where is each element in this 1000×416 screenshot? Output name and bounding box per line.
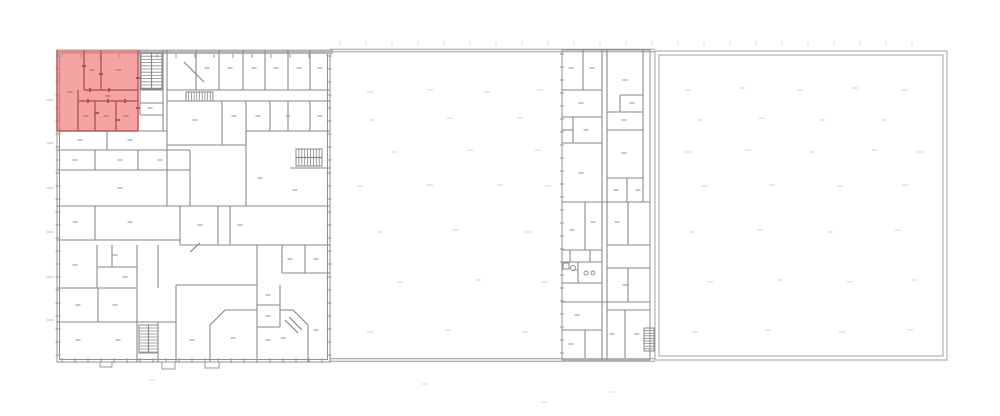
yard-walls [330, 49, 655, 361]
window-sill-marks [47, 100, 54, 320]
left-building-top-band-highlight [57, 50, 138, 55]
dimension-marks-below [149, 380, 616, 402]
plumbing-fixtures [571, 266, 596, 276]
dimension-marks-hall [685, 88, 923, 332]
right-hall-border [655, 51, 947, 360]
middle-building-walls [562, 50, 650, 360]
floorplan-svg [0, 0, 1000, 416]
stairs-hatching [139, 53, 654, 353]
middle-building-outline [562, 50, 650, 360]
site-top-ticks [340, 41, 912, 45]
floorplan-canvas [0, 0, 1000, 416]
fixture-boxes [563, 263, 569, 269]
dimension-marks-yard [357, 90, 551, 332]
entrance-stubs [100, 362, 219, 369]
